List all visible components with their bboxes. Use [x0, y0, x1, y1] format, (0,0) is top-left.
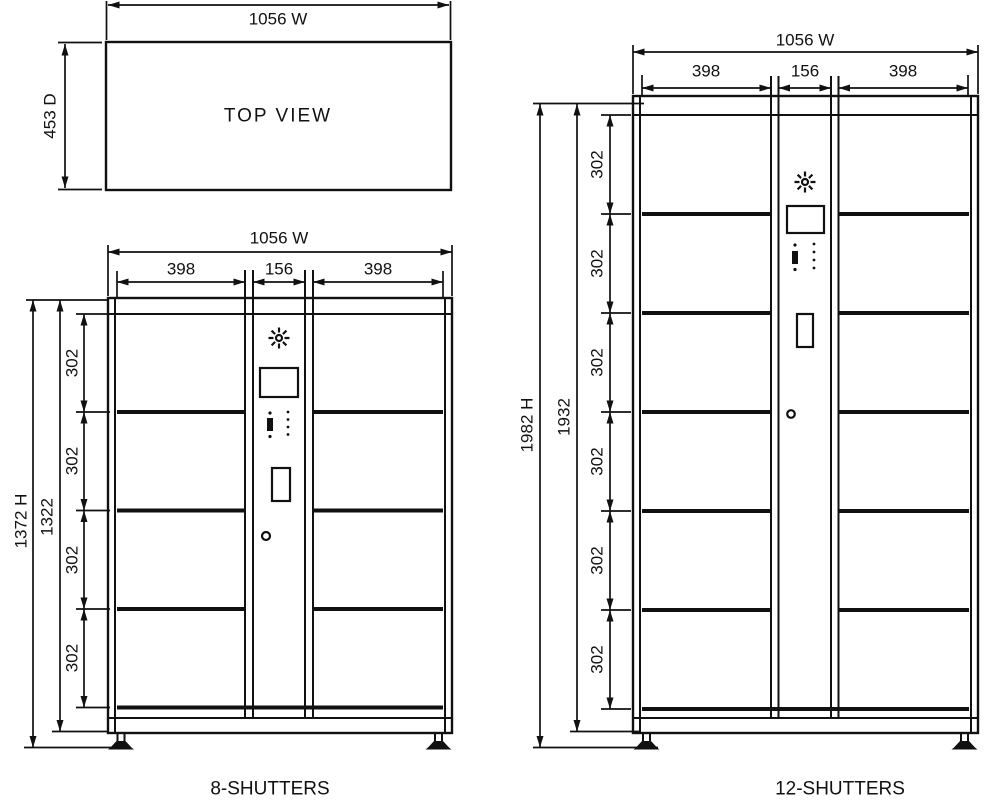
locker-dimension-drawing: TOP VIEW 1056 W 453 D — [0, 0, 1000, 800]
dimension-label: 302 — [63, 349, 82, 377]
dimension-label: 1322 — [38, 498, 57, 536]
dimension-label: 1932 — [555, 398, 574, 436]
reader-dot — [287, 426, 290, 429]
column-dimensions: 398 156 398 — [642, 62, 968, 97]
dimension-label: 302 — [588, 150, 607, 178]
row-dimensions: 302 302 302 302 302 302 — [588, 115, 632, 709]
card-reader-icon — [267, 411, 289, 439]
control-console — [787, 172, 824, 418]
dimension-label: 1056 W — [250, 229, 309, 248]
reader-dot — [793, 268, 796, 271]
leveling-feet — [108, 733, 452, 750]
dimension-label: 1982 H — [518, 398, 537, 453]
reader-dot — [287, 418, 290, 421]
cabinet-frame-lines — [108, 298, 452, 733]
drop-slot — [272, 468, 290, 501]
shutter-dividers — [642, 214, 969, 709]
reader-dot — [268, 435, 271, 438]
dimension-label: 302 — [588, 249, 607, 277]
dimension-label: 453 D — [41, 93, 60, 138]
tick-lines — [601, 115, 631, 709]
dimension-label: 156 — [265, 260, 293, 279]
control-console — [260, 328, 298, 541]
top-view-depth-dimension: 453 D — [41, 43, 103, 190]
leveling-foot-right — [426, 741, 452, 750]
diagram-svg: TOP VIEW 1056 W 453 D — [0, 0, 1000, 800]
reader-dot — [287, 411, 290, 414]
top-view: TOP VIEW 1056 W 453 D — [41, 1, 452, 190]
dimension-label: 302 — [63, 644, 82, 672]
top-view-title: TOP VIEW — [224, 106, 332, 127]
reader-dot — [268, 411, 271, 414]
keyhole — [787, 410, 795, 418]
reader-dot — [813, 251, 816, 254]
reader-dot — [813, 243, 816, 246]
dimension-label: 302 — [588, 546, 607, 574]
card-reader-icon — [792, 243, 815, 272]
shutter-dividers — [117, 412, 443, 708]
dimension-label: 302 — [588, 645, 607, 673]
display-screen — [260, 368, 298, 397]
column-dimensions: 398 156 398 — [117, 260, 443, 298]
dimension-label: 1372 H — [12, 494, 31, 549]
drop-slot — [797, 314, 813, 347]
cabinet-8-title: 8-SHUTTERS — [210, 779, 329, 800]
indicator-light-center-icon — [276, 335, 282, 341]
reader-dot — [793, 243, 796, 246]
reader-dot — [813, 267, 816, 270]
dimension-label: 398 — [167, 260, 195, 279]
indicator-light-icon — [795, 172, 816, 193]
display-screen — [787, 206, 824, 233]
dimension-label: 398 — [364, 260, 392, 279]
dimension-label: 302 — [63, 447, 82, 475]
dimension-label: 302 — [63, 546, 82, 574]
top-view-width-dimension: 1056 W — [107, 1, 451, 40]
cabinet-12-title: 12-SHUTTERS — [775, 779, 905, 800]
cabinet-12-shutters-view: 1056 W 398 156 398 1982 H 1932 302 — [518, 31, 979, 800]
cabinet-8-shutters-view: 1056 W 398 156 398 1372 H 1322 302 302 — [12, 229, 453, 800]
leveling-feet — [634, 733, 978, 750]
cabinet-outline — [108, 298, 452, 733]
dimension-label: 1056 W — [776, 31, 835, 50]
foot-stems — [118, 733, 443, 741]
reader-bar — [792, 251, 798, 264]
column-separators — [245, 270, 313, 718]
dimension-label: 156 — [791, 62, 819, 81]
dimension-label: 302 — [588, 348, 607, 376]
row-dimensions: 302 302 302 302 — [63, 314, 111, 708]
reader-dot — [813, 259, 816, 262]
dimension-label: 1056 W — [249, 10, 308, 29]
indicator-light-center-icon — [802, 179, 808, 185]
indicator-light-icon — [269, 328, 290, 349]
reader-bar — [267, 418, 273, 431]
reader-dot — [287, 433, 290, 436]
dimension-label: 302 — [588, 447, 607, 475]
dimension-label: 398 — [692, 62, 720, 81]
keyhole — [262, 532, 270, 540]
dimension-label: 398 — [889, 62, 917, 81]
leveling-foot-right — [952, 741, 978, 750]
